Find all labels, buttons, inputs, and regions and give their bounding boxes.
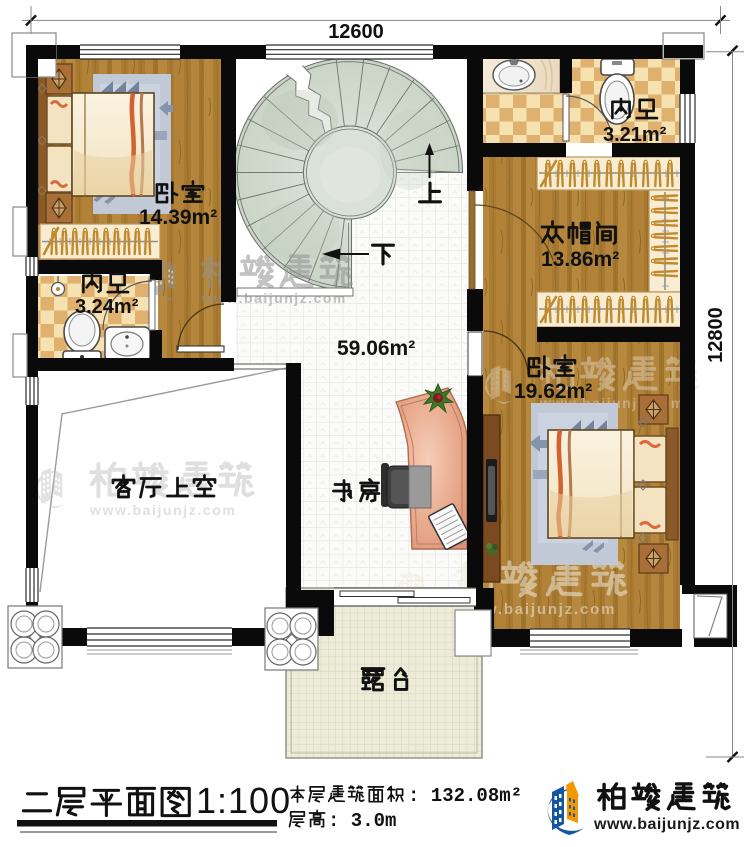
svg-text:12600: 12600 xyxy=(328,21,384,43)
svg-text:3.21m²: 3.21m² xyxy=(603,124,667,146)
svg-text:14.39m²: 14.39m² xyxy=(139,206,217,229)
svg-text:: 132.08m²: : 132.08m² xyxy=(408,785,522,807)
svg-text:1:100: 1:100 xyxy=(196,780,291,821)
svg-text:www.baijunjz.com: www.baijunjz.com xyxy=(89,502,236,518)
svg-text:12800: 12800 xyxy=(705,307,727,363)
svg-text:13.86m²: 13.86m² xyxy=(541,248,619,271)
svg-text:59.06m²: 59.06m² xyxy=(337,337,415,360)
svg-text:3.24m²: 3.24m² xyxy=(75,296,139,318)
svg-text:www.baijunjz.com: www.baijunjz.com xyxy=(593,816,740,833)
svg-text:: 3.0m: : 3.0m xyxy=(328,810,396,832)
svg-text:19.62m²: 19.62m² xyxy=(514,380,592,403)
